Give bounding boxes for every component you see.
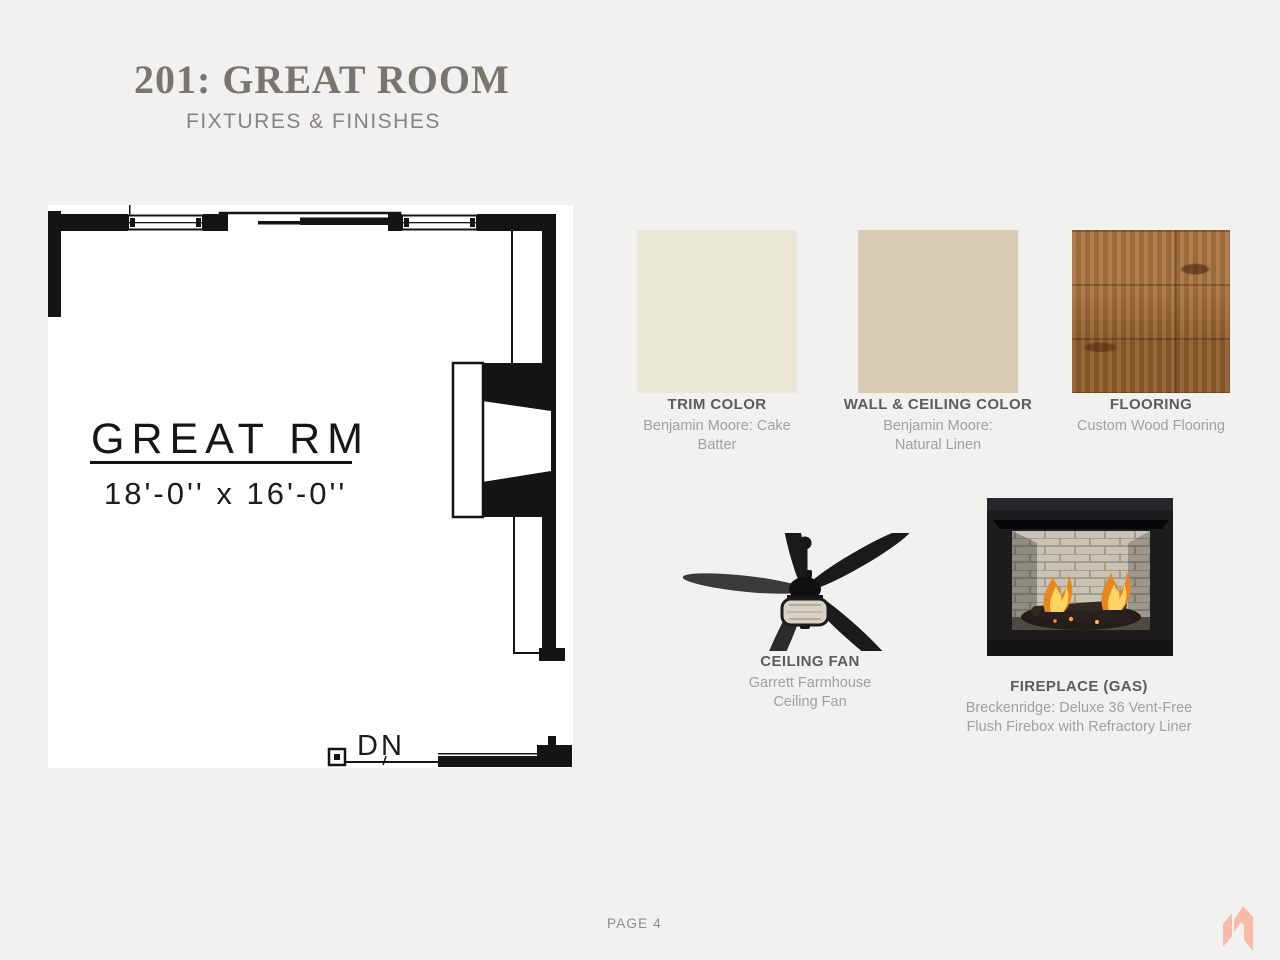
wall-ceiling-color-swatch xyxy=(858,230,1018,393)
page-number: PAGE 4 xyxy=(607,916,662,931)
wall-ceiling-label: WALL & CEILING COLOR xyxy=(833,395,1043,415)
trim-color-caption: TRIM COLOR Benjamin Moore: Cake Batter xyxy=(622,395,812,455)
fireplace-label: FIREPLACE (GAS) xyxy=(949,677,1209,697)
floor-plan-drawing: GREAT RM 18'-0'' x 16'-0'' DN xyxy=(48,205,573,768)
floor-plan: GREAT RM 18'-0'' x 16'-0'' DN xyxy=(48,205,573,768)
ceiling-fan-caption: CEILING FAN Garrett Farmhouse Ceiling Fa… xyxy=(725,652,895,712)
ceiling-fan-label: CEILING FAN xyxy=(725,652,895,672)
fireplace-caption: FIREPLACE (GAS) Breckenridge: Deluxe 36 … xyxy=(949,677,1209,737)
room-dimensions: 18'-0'' x 16'-0'' xyxy=(104,476,347,511)
flooring-swatch xyxy=(1072,230,1230,393)
room-name: GREAT RM xyxy=(91,415,370,463)
brand-logo-icon xyxy=(1220,902,1256,957)
flooring-caption: FLOORING Custom Wood Flooring xyxy=(1056,395,1246,436)
trim-color-swatch xyxy=(637,230,797,393)
stair-down-label: DN xyxy=(357,730,405,762)
ceiling-fan-description: Garrett Farmhouse Ceiling Fan xyxy=(735,674,885,712)
fireplace-description: Breckenridge: Deluxe 36 Vent-Free Flush … xyxy=(954,699,1204,737)
flooring-label: FLOORING xyxy=(1056,395,1246,415)
wall-ceiling-caption: WALL & CEILING COLOR Benjamin Moore: Nat… xyxy=(833,395,1043,455)
page-title: 201: GREAT ROOM xyxy=(134,56,510,103)
page-subtitle: FIXTURES & FINISHES xyxy=(186,110,441,134)
wall-ceiling-description: Benjamin Moore: Natural Linen xyxy=(858,417,1018,455)
fireplace-image xyxy=(985,490,1177,671)
trim-color-label: TRIM COLOR xyxy=(622,395,812,415)
trim-color-description: Benjamin Moore: Cake Batter xyxy=(637,417,797,455)
flooring-description: Custom Wood Flooring xyxy=(1056,417,1246,436)
ceiling-fan-image xyxy=(683,533,928,656)
